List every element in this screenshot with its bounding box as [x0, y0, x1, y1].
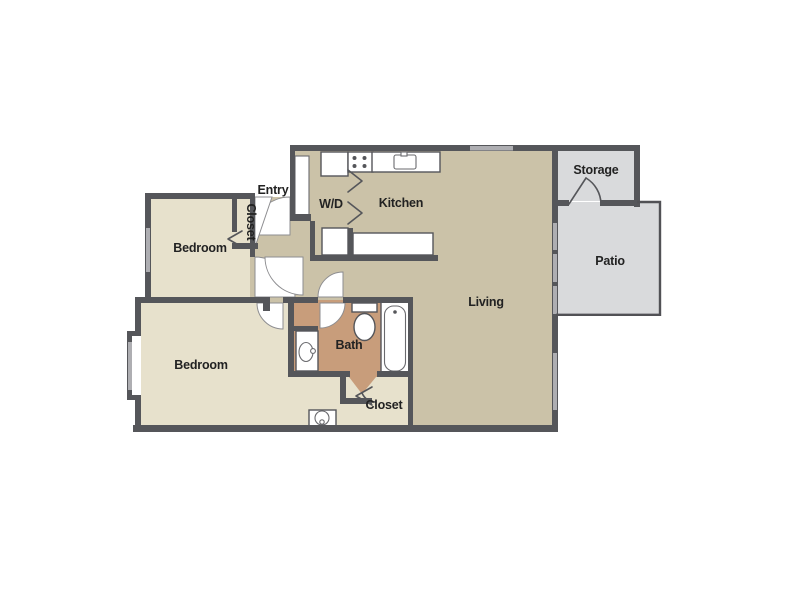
bathtub-icon — [381, 302, 409, 375]
patio-slider-pane-3 — [553, 286, 557, 314]
hall-closet-label: Closet — [365, 398, 403, 412]
entry-label: Entry — [258, 183, 289, 197]
bedroom-1-window — [146, 228, 150, 272]
refrigerator-icon — [321, 152, 348, 176]
kitchen-label: Kitchen — [379, 196, 423, 210]
bedroom-2-label: Bedroom — [174, 358, 228, 372]
bathroom-sink-icon — [296, 331, 318, 371]
kitchen-sink-icon — [372, 152, 440, 172]
kitchen-window — [470, 146, 513, 151]
bedroom-2-window — [128, 342, 132, 390]
living-label: Living — [468, 295, 504, 309]
storage-label: Storage — [573, 163, 618, 177]
water-heater-icon — [309, 410, 336, 426]
bedroom-1-closet-label: Closet — [244, 203, 258, 241]
patio-label: Patio — [595, 254, 625, 268]
living-floor — [413, 297, 552, 425]
floorplan-svg: Entry W/D Kitchen Storage Bedroom Closet… — [0, 0, 800, 600]
floorplan-image: Entry W/D Kitchen Storage Bedroom Closet… — [0, 0, 800, 600]
entry-closet-icon — [295, 156, 309, 215]
laundry-label: W/D — [319, 197, 343, 211]
living-window — [553, 353, 557, 410]
floor-fills — [141, 151, 661, 425]
bedroom-1-doorway-floor — [250, 257, 255, 300]
patio-slider-pane-1 — [553, 223, 557, 250]
stove-icon — [348, 152, 373, 172]
toilet-icon — [352, 303, 377, 341]
kitchen-island-counter — [353, 233, 433, 255]
patio-slider-pane-2 — [553, 254, 557, 282]
bedroom-1-label: Bedroom — [173, 241, 227, 255]
bath-label: Bath — [336, 338, 363, 352]
dishwasher-icon — [322, 228, 348, 255]
bedroom-2-doorway-floor — [268, 297, 283, 303]
